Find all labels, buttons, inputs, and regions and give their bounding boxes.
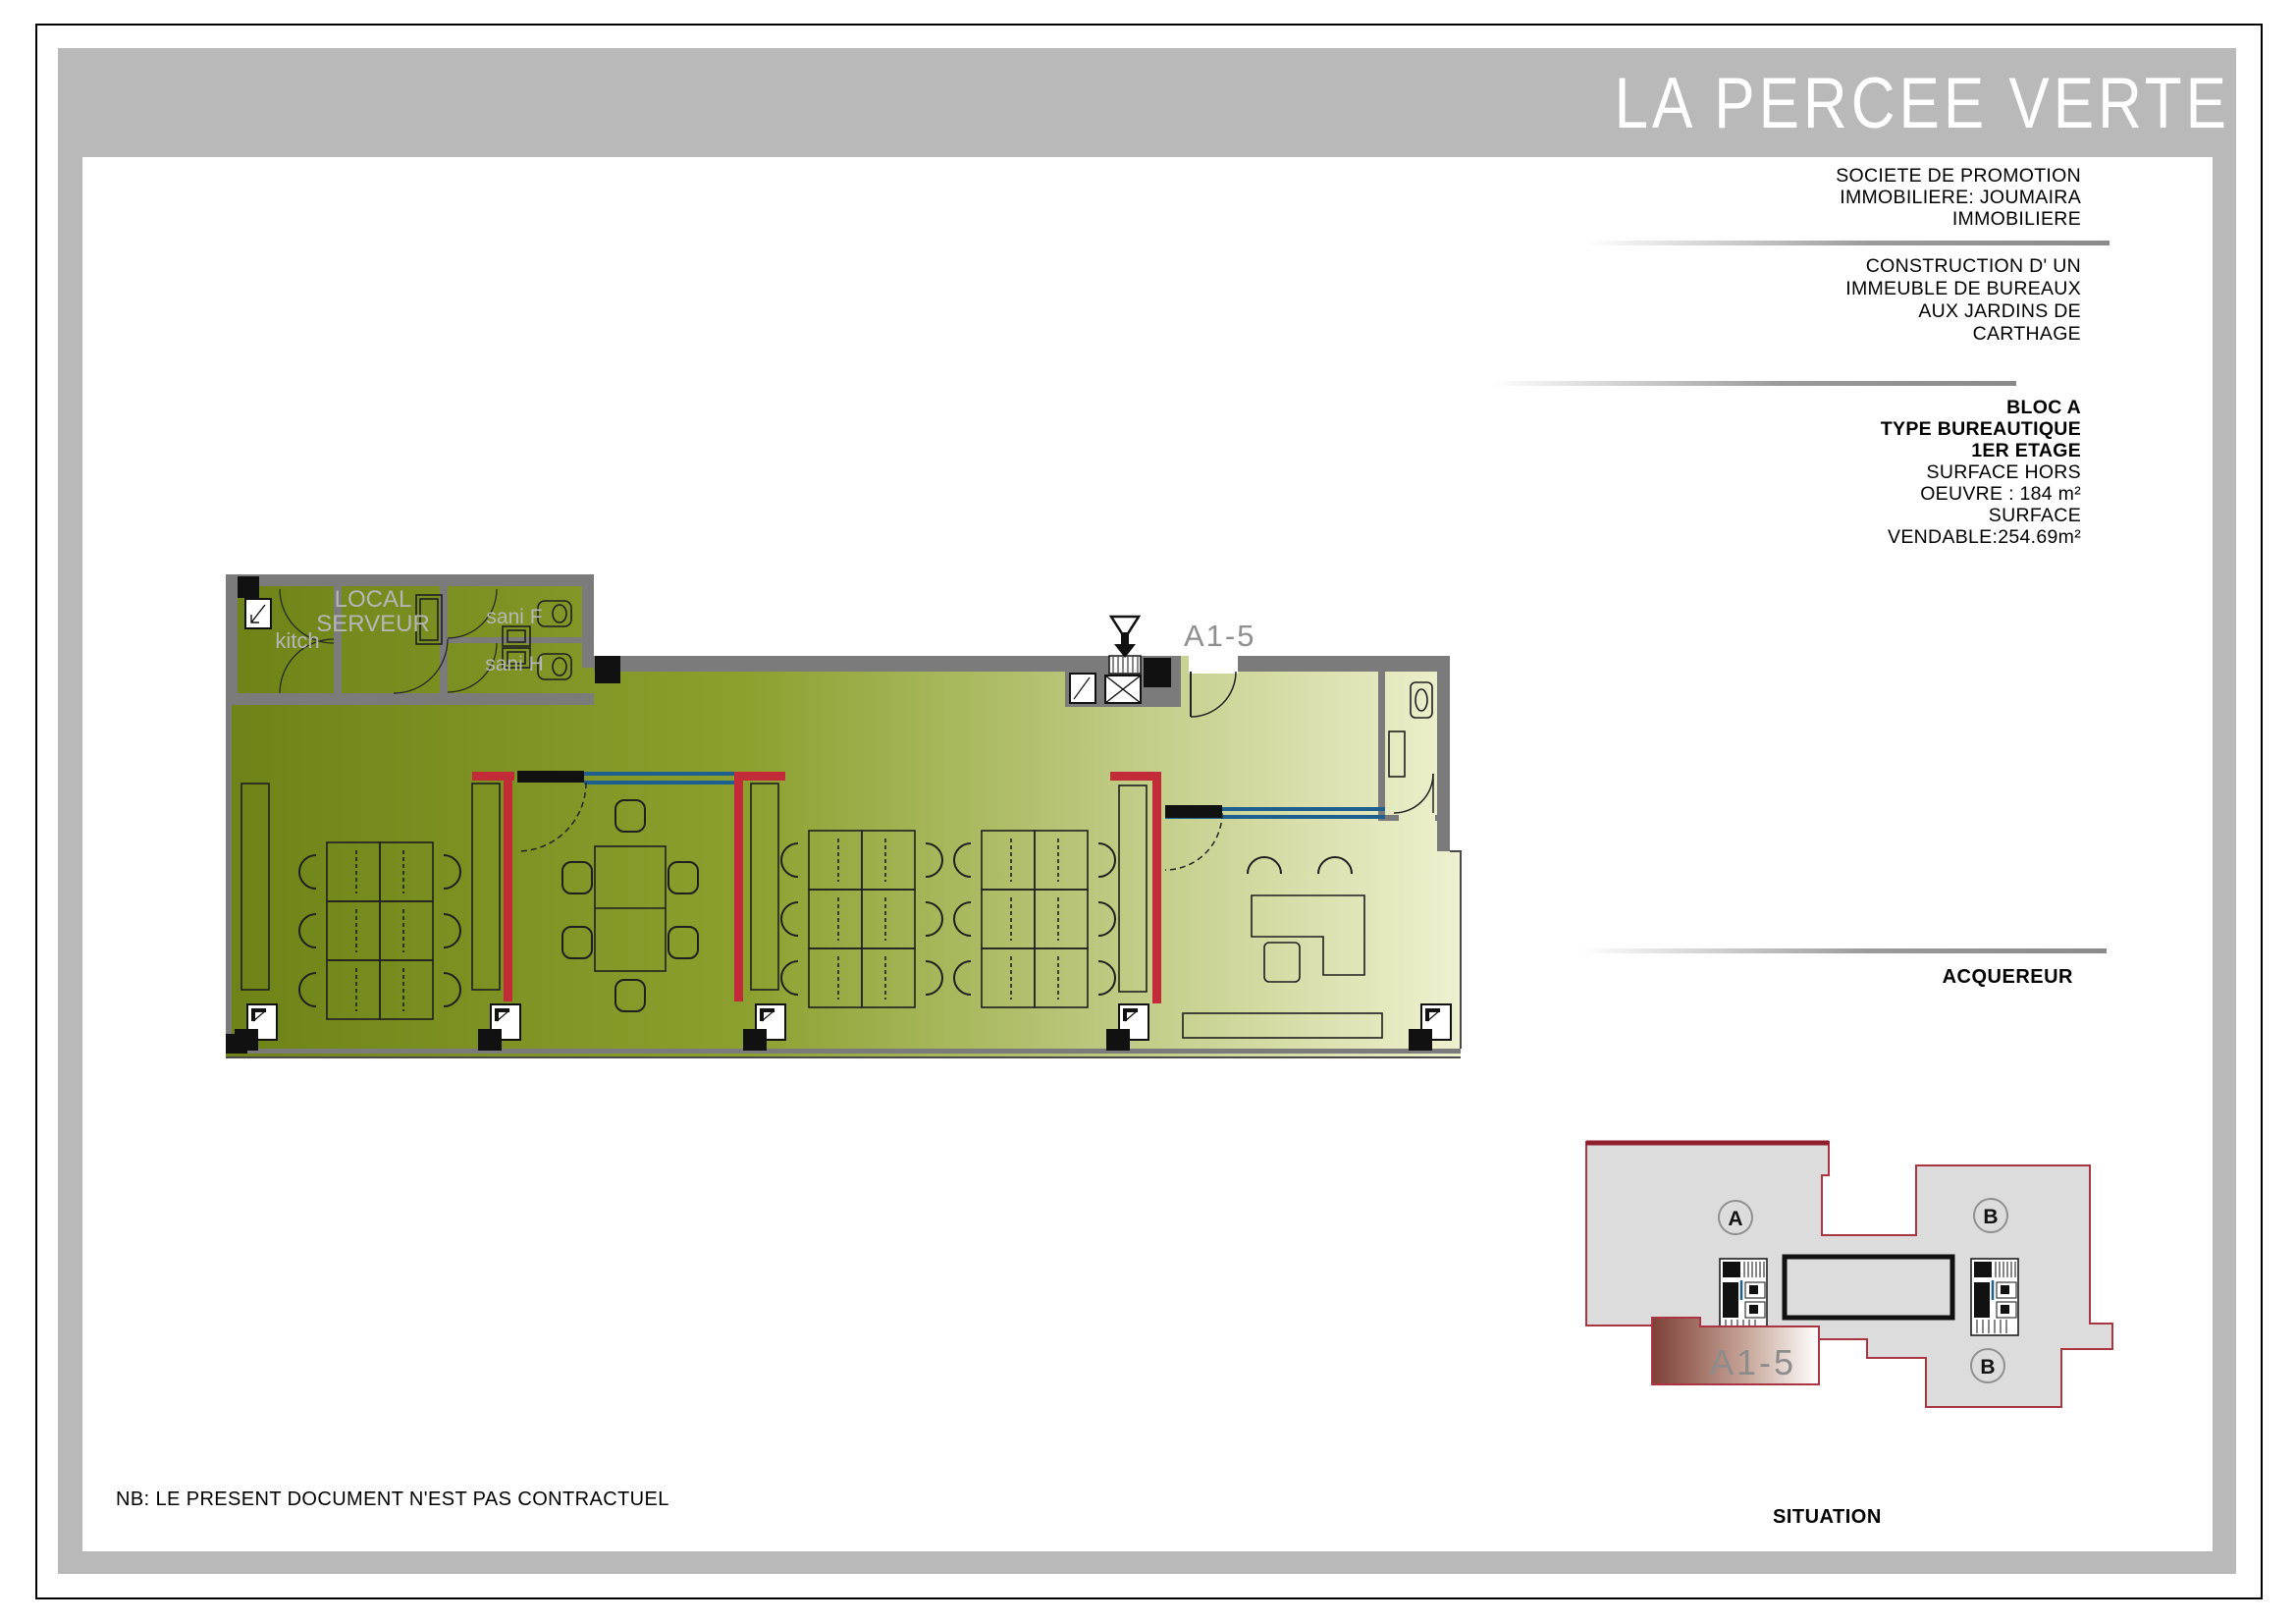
window-symbol [245,599,271,628]
stair-core-left [1720,1259,1767,1335]
courtyard [1785,1257,1952,1318]
room-label-sani-h: sani H [485,653,544,676]
floor-plan: A1-5 [226,574,1461,1058]
room-label-kitchen: kitch [275,628,319,653]
svg-text:B: B [1983,1206,1998,1228]
svg-text:A: A [1728,1208,1742,1230]
room-label-sani-f: sani F [486,606,542,628]
plan-canvas: A1-5 [0,0,2296,1623]
entrance-arrow-icon [1111,617,1139,658]
stair-core-right [1971,1259,2018,1335]
svg-text:B: B [1980,1356,1995,1379]
drawing-sheet: LA PERCEE VERTE SOCIETE DE PROMOTION IMM… [0,0,2296,1623]
situation-plan: A1-5 A B B [1586,1142,2112,1407]
unit-label-situation: A1-5 [1710,1342,1796,1382]
unit-label-plan: A1-5 [1184,619,1255,653]
